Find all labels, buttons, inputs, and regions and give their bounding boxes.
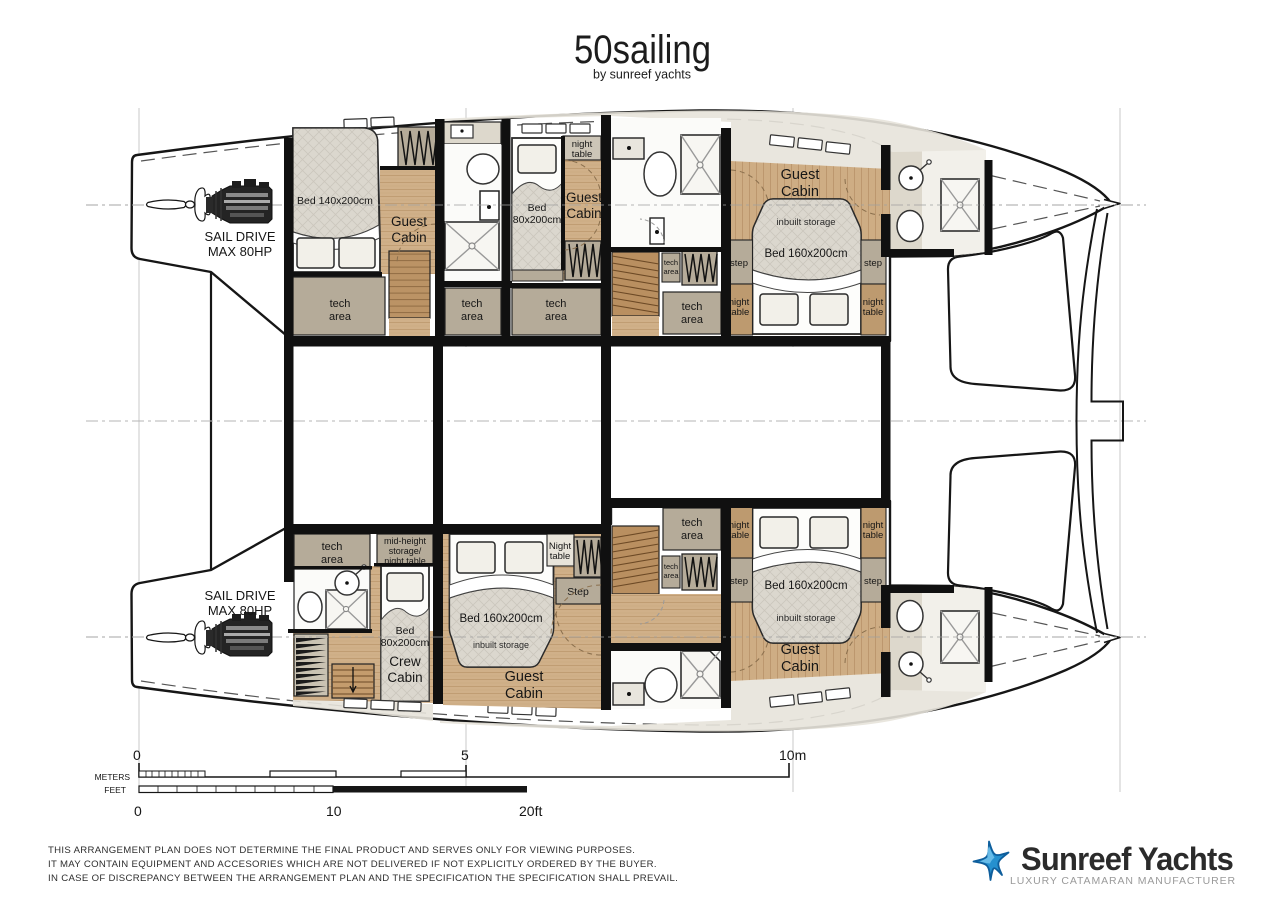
svg-text:area: area [321,554,344,566]
svg-text:Guest: Guest [391,214,427,229]
svg-text:MAX 80HP: MAX 80HP [208,603,272,618]
svg-text:5: 5 [461,747,469,763]
svg-text:area: area [681,530,704,542]
svg-text:80x200cm: 80x200cm [381,637,430,649]
svg-text:tech: tech [682,301,703,313]
svg-text:Guest: Guest [566,190,602,205]
svg-text:50sailing: 50sailing [574,28,711,72]
svg-text:IT MAY CONTAIN EQUIPMENT AND A: IT MAY CONTAIN EQUIPMENT AND ACCESORIES … [48,859,657,870]
svg-text:80x200cm: 80x200cm [513,214,562,226]
svg-text:10m: 10m [779,747,806,763]
svg-text:area: area [545,311,568,323]
svg-text:table: table [863,530,884,541]
svg-text:step: step [864,576,882,587]
svg-text:tech: tech [682,517,703,529]
svg-text:storage/: storage/ [389,546,422,556]
svg-text:METERS: METERS [95,772,131,782]
svg-text:area: area [681,314,704,326]
svg-text:step: step [730,258,748,269]
svg-text:table: table [863,307,884,318]
svg-text:IN CASE OF DISCREPANCY BETWEEN: IN CASE OF DISCREPANCY BETWEEN THE ARRAN… [48,873,678,884]
svg-text:inbuilt storage: inbuilt storage [473,640,529,650]
svg-text:FEET: FEET [104,785,126,795]
svg-text:table: table [550,551,571,562]
svg-text:Cabin: Cabin [781,184,819,200]
svg-text:table: table [729,307,750,318]
svg-text:mid-height: mid-height [384,536,427,546]
svg-text:tech: tech [664,562,678,571]
svg-text:tech: tech [664,258,678,267]
svg-text:tech: tech [462,298,483,310]
svg-text:SAIL DRIVE: SAIL DRIVE [204,588,275,603]
svg-text:Bed 160x200cm: Bed 160x200cm [459,613,542,625]
svg-text:area: area [663,571,679,580]
svg-text:Guest: Guest [505,669,544,685]
svg-text:Guest: Guest [781,642,820,658]
svg-text:THIS ARRANGEMENT PLAN DOES NOT: THIS ARRANGEMENT PLAN DOES NOT DETERMINE… [48,845,635,856]
svg-text:Cabin: Cabin [566,206,601,221]
svg-text:area: area [663,267,679,276]
svg-text:tech: tech [330,298,351,310]
svg-text:step: step [864,258,882,269]
svg-text:Cabin: Cabin [391,230,426,245]
svg-text:tech: tech [546,298,567,310]
svg-text:area: area [461,311,484,323]
svg-text:Cabin: Cabin [505,686,543,702]
svg-text:table: table [729,530,750,541]
svg-text:Step: Step [567,586,589,598]
svg-text:10: 10 [326,803,342,819]
svg-text:Cabin: Cabin [387,670,422,685]
svg-text:0: 0 [133,747,141,763]
svg-text:area: area [329,311,352,323]
svg-text:inbuilt storage: inbuilt storage [776,217,835,228]
svg-text:Crew: Crew [389,654,421,669]
svg-text:Bed 160x200cm: Bed 160x200cm [764,580,847,592]
svg-text:SAIL DRIVE: SAIL DRIVE [204,229,275,244]
svg-text:Bed 160x200cm: Bed 160x200cm [764,248,847,260]
svg-text:Bed: Bed [528,202,547,214]
svg-text:0: 0 [134,803,142,819]
svg-text:Guest: Guest [781,167,820,183]
svg-text:Cabin: Cabin [781,659,819,675]
svg-text:Sunreef Yachts: Sunreef Yachts [1021,841,1233,877]
svg-text:table: table [572,149,593,160]
svg-text:20ft: 20ft [519,803,542,819]
svg-text:by sunreef yachts: by sunreef yachts [593,67,691,82]
svg-text:LUXURY CATAMARAN MANUFACTURER: LUXURY CATAMARAN MANUFACTURER [1010,875,1236,887]
svg-text:inbuilt storage: inbuilt storage [776,613,835,624]
svg-text:tech: tech [322,541,343,553]
svg-text:MAX 80HP: MAX 80HP [208,244,272,259]
svg-text:Bed: Bed [396,625,415,637]
svg-text:Bed 140x200cm: Bed 140x200cm [297,195,373,207]
svg-text:step: step [730,576,748,587]
